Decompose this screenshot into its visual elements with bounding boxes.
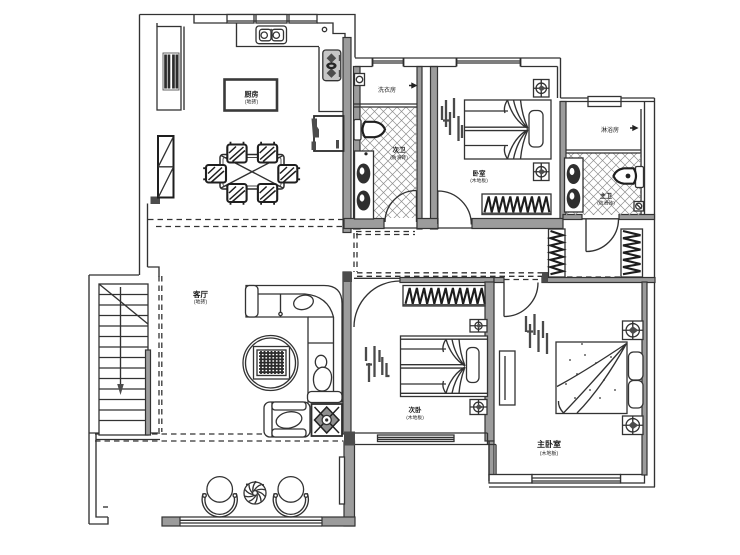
svg-text:(木地板): (木地板): [540, 450, 559, 457]
svg-text:主卫: 主卫: [600, 192, 612, 200]
svg-text:客厅: 客厅: [192, 289, 208, 299]
svg-text:(木地板): (木地板): [470, 177, 488, 184]
svg-text:(木地板): (木地板): [406, 414, 424, 421]
svg-text:洗衣房: 洗衣房: [378, 86, 396, 94]
svg-text:厨房: 厨房: [245, 90, 259, 99]
svg-text:卧室: 卧室: [473, 169, 487, 178]
svg-text:主卧室: 主卧室: [537, 439, 561, 449]
svg-text:次卧: 次卧: [409, 405, 423, 414]
svg-text:(防滑砖): (防滑砖): [390, 154, 408, 161]
svg-text:次卫: 次卫: [393, 145, 407, 154]
svg-text:(地砖): (地砖): [194, 299, 208, 306]
svg-text:(地砖): (地砖): [245, 99, 259, 106]
svg-text:(防滑砖): (防滑砖): [597, 200, 615, 207]
svg-text:淋浴房: 淋浴房: [601, 126, 619, 134]
